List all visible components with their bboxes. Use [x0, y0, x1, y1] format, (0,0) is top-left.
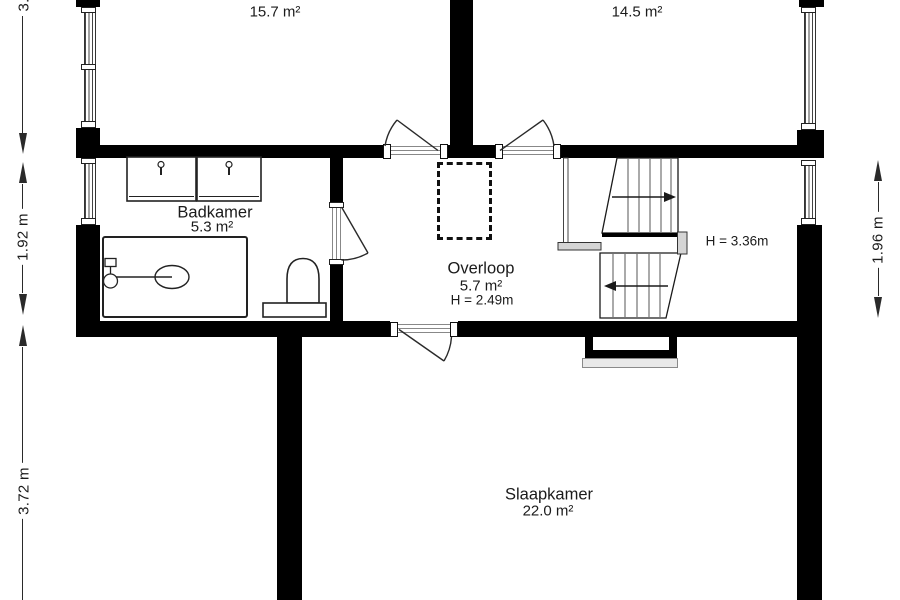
wall-right-block-mid — [797, 130, 824, 158]
wall-left-top-stub — [76, 0, 100, 7]
dimension-arrow-up-icon — [874, 160, 882, 181]
door-threshold-room-left — [391, 146, 440, 157]
toilet — [263, 259, 326, 318]
door-arc — [342, 253, 369, 260]
stair-newel-post — [678, 232, 688, 254]
door-jamb — [390, 322, 398, 337]
stair-railing-horizontal — [558, 243, 601, 251]
wall-badkamer-right-upper — [330, 158, 343, 202]
stair-treads-lower — [613, 254, 660, 317]
wall-main-horizontal-left — [100, 145, 383, 158]
chimney-mantel — [582, 358, 678, 368]
faucet-icon — [158, 162, 164, 168]
washbasin-right — [197, 157, 261, 201]
roof-void-dashed-outline — [437, 162, 492, 240]
chimney-inner — [593, 337, 669, 350]
window-cap — [801, 218, 816, 225]
dimension-label-right: 1.96 m — [869, 212, 888, 268]
dimension-label-left-bottom: 3.72 m — [15, 463, 34, 519]
room-area-badkamer: 5.3 m² — [191, 219, 234, 236]
staircase — [558, 158, 687, 318]
door-threshold-room-right — [503, 146, 553, 157]
dimension-line — [22, 16, 23, 133]
dimension-label-left-middle: 1.92 m — [14, 209, 33, 265]
window-divider — [81, 64, 96, 70]
stairs-arrow-right-icon — [664, 192, 676, 202]
window-cap — [801, 160, 816, 166]
stairs-arrow-left-icon — [604, 281, 616, 291]
stairs-upper-flight — [602, 158, 678, 233]
wall-right-exterior — [797, 225, 822, 600]
room-area-slaapkamer: 22.0 m² — [523, 503, 574, 520]
window-cap — [81, 7, 96, 13]
bathtub — [103, 237, 247, 317]
toilet-tank — [263, 303, 326, 317]
wall-overloop-bottom-right — [458, 321, 797, 337]
window-cap — [81, 158, 96, 164]
toilet-bowl — [287, 259, 319, 304]
door-jamb — [440, 144, 448, 159]
door-leaf — [342, 207, 369, 253]
wall-badkamer-right-lower — [330, 265, 343, 321]
room-name-overloop: Overloop — [448, 260, 515, 279]
stair-treads-upper — [628, 159, 671, 232]
dimension-arrow-down-icon — [874, 297, 882, 318]
wall-main-horizontal-right — [561, 145, 797, 158]
wall-overloop-bottom-left — [343, 321, 390, 337]
door-arc — [444, 337, 452, 361]
bathtub-rim — [103, 237, 247, 317]
window-right-top — [804, 7, 816, 130]
wall-slaapkamer-left — [277, 337, 302, 600]
window-cap — [81, 218, 96, 225]
stair-railing-vertical — [564, 158, 569, 243]
washbasin-cabinets — [127, 157, 261, 201]
wall-right-top-stub — [799, 0, 824, 7]
wall-main-horizontal-center — [447, 145, 495, 158]
bathtub-faucet-icon — [105, 259, 116, 267]
door-badkamer — [342, 207, 369, 260]
window-cap — [81, 121, 96, 128]
door-jamb — [329, 259, 344, 265]
room-area-top-left: 15.7 m² — [250, 4, 301, 21]
dimension-arrow-up-icon — [19, 162, 27, 183]
door-arc — [385, 120, 397, 146]
room-height-overloop: H = 2.49m — [451, 293, 514, 308]
window-cap — [801, 7, 816, 13]
bathtub-faucet-icon — [104, 274, 118, 288]
door-jamb — [495, 144, 503, 159]
wall-middle-vertical — [450, 0, 473, 145]
floorplan: 15.7 m² 14.5 m² Badkamer 5.3 m² Overloop… — [0, 0, 900, 600]
window-stairwell — [804, 160, 816, 225]
door-jamb — [383, 144, 391, 159]
dimension-arrow-up-icon — [19, 325, 27, 346]
door-jamb — [553, 144, 561, 159]
faucet-icon — [226, 162, 232, 168]
stair-landing-edge — [602, 233, 678, 237]
wall-left-block-mid — [76, 128, 100, 158]
door-arc — [543, 120, 554, 146]
wall-badkamer-bottom — [76, 321, 343, 337]
stairwell-height-label: H = 3.36m — [706, 234, 769, 249]
bathtub-drain — [155, 266, 189, 289]
dimension-arrow-down-icon — [19, 294, 27, 315]
stairs-lower-flight — [600, 253, 681, 318]
washbasin-left — [127, 157, 196, 201]
door-threshold-slaapkamer — [398, 324, 450, 335]
room-area-top-right: 14.5 m² — [612, 4, 663, 21]
door-threshold-badkamer — [332, 208, 341, 259]
door-jamb — [329, 202, 344, 208]
dimension-label-left-top: 3.7 m — [15, 0, 34, 16]
window-cap — [801, 123, 816, 130]
dimension-arrow-down-icon — [19, 133, 27, 154]
door-jamb — [450, 322, 458, 337]
window-badkamer — [84, 158, 96, 225]
